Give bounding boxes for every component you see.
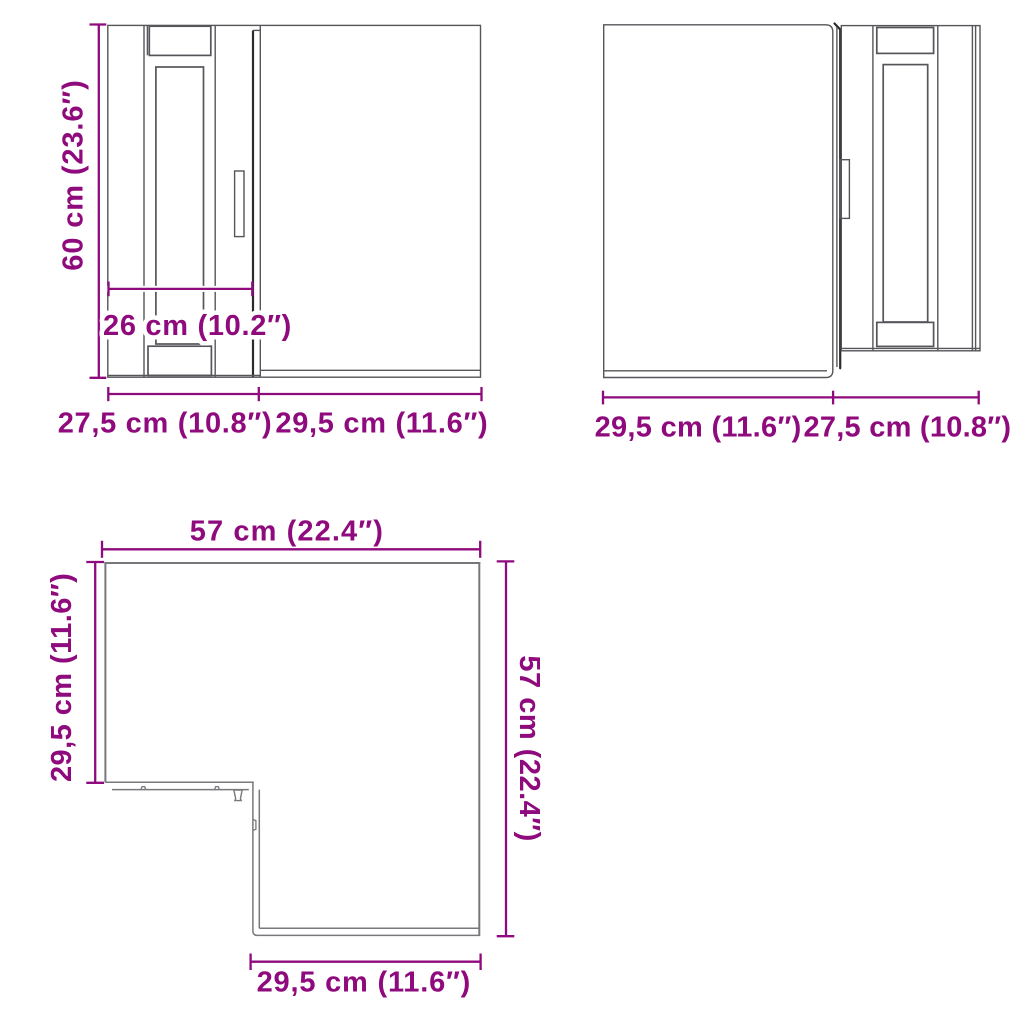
- svg-text:27,5 cm (10.8″): 27,5 cm (10.8″): [58, 408, 273, 440]
- svg-text:29,5 cm (11.6″): 29,5 cm (11.6″): [595, 411, 802, 443]
- svg-text:27,5 cm (10.8″): 27,5 cm (10.8″): [803, 411, 1011, 443]
- svg-text:57 cm (22.4″): 57 cm (22.4″): [513, 655, 545, 841]
- svg-text:29,5 cm (11.6″): 29,5 cm (11.6″): [46, 573, 78, 782]
- svg-text:26 cm (10.2″): 26 cm (10.2″): [103, 310, 292, 342]
- svg-text:29,5 cm (11.6″): 29,5 cm (11.6″): [275, 408, 488, 440]
- svg-text:29,5 cm (11.6″): 29,5 cm (11.6″): [257, 966, 472, 998]
- svg-text:60 cm (23.6″): 60 cm (23.6″): [58, 79, 90, 270]
- svg-text:57 cm (22.4″): 57 cm (22.4″): [190, 515, 384, 547]
